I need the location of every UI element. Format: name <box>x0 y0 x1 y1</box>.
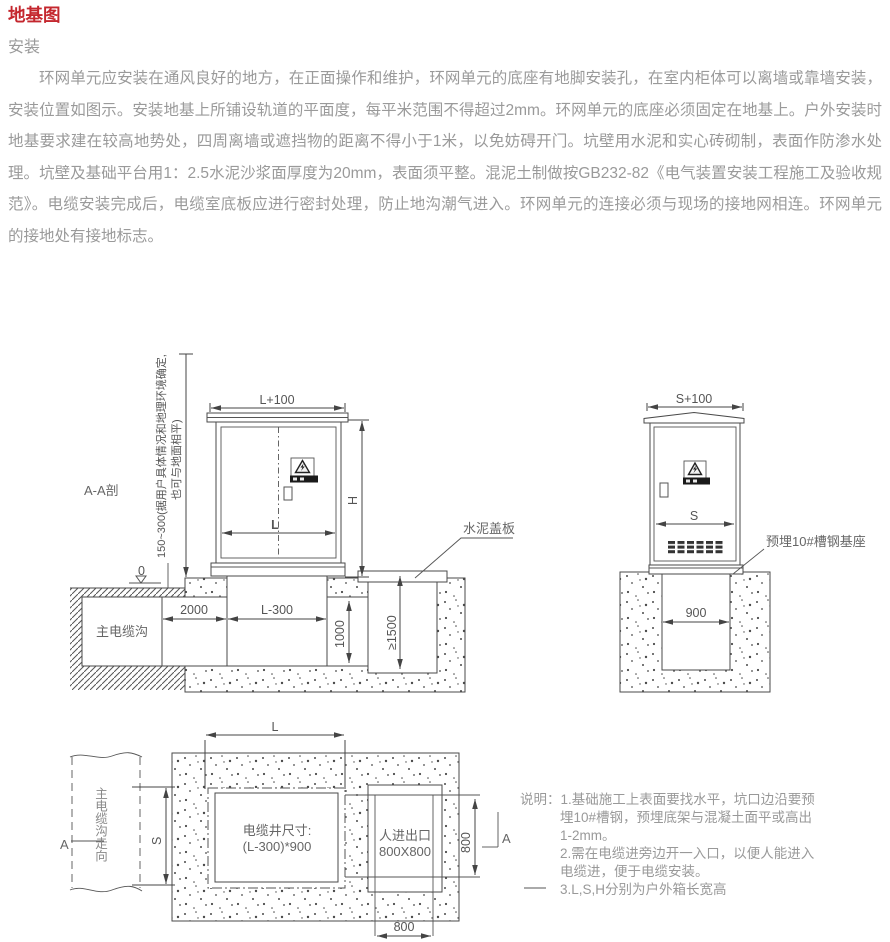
dim-plan-width-s: S <box>132 787 175 885</box>
ground-level-marker: 0 <box>129 563 168 588</box>
electric-warning-icon <box>683 461 710 485</box>
svg-text:900: 900 <box>686 606 707 620</box>
note-line: 3.L,S,H分别为户外箱长宽高 <box>520 881 890 899</box>
dim-front-top-width: L+100 <box>210 393 345 412</box>
trench-direction-label: 主电缆沟走向 <box>93 787 107 865</box>
main-cable-trench-label: 主电缆沟 <box>96 624 148 639</box>
svg-text:A: A <box>60 837 69 852</box>
dim-depth-150-300: 150~300(据用户具体情况和地理环境确定, 也可与地面相平) <box>154 354 193 577</box>
svg-text:L+100: L+100 <box>259 393 294 407</box>
svg-text:800: 800 <box>394 920 415 934</box>
svg-text:L: L <box>271 518 279 532</box>
page-title: 地基图 <box>8 2 61 27</box>
svg-text:H: H <box>346 496 360 505</box>
svg-text:150~300(据用户具体情况和地理环境确定,: 150~300(据用户具体情况和地理环境确定, <box>154 354 168 558</box>
cement-cover-slab <box>358 571 447 582</box>
svg-text:S: S <box>150 837 164 845</box>
cabinet-pit-cutout <box>227 576 327 666</box>
cable-well-label-1: 电缆井尺寸: <box>243 823 312 838</box>
svg-text:也可与地面相平): 也可与地面相平) <box>170 419 183 500</box>
section-heading: 安装 <box>8 33 40 57</box>
note-line: 埋10#槽钢，预埋底架与混凝土面平或高出 <box>520 809 890 827</box>
vent-grille <box>668 541 724 554</box>
svg-text:L: L <box>272 720 279 734</box>
svg-text:800: 800 <box>459 832 473 853</box>
cable-well-cutout <box>368 582 437 673</box>
dim-entrance-height-800: 800 <box>459 799 475 875</box>
side-elevation-diagram: S+100 S 900 预埋10#槽钢基座 <box>620 392 866 692</box>
door-handle-side <box>660 483 668 497</box>
cable-well-label-2: (L-300)*900 <box>243 839 312 854</box>
note-line: 1-2mm。 <box>520 827 890 845</box>
svg-text:2000: 2000 <box>180 603 208 617</box>
note-line: 2.需在电缆进旁边开一入口，以便人能进入 <box>520 845 890 863</box>
section-aa-label: A-A剖 <box>84 483 119 498</box>
svg-text:人进出口: 人进出口 <box>379 828 431 843</box>
plan-view-diagram: 电缆井尺寸: (L-300)*900 人进出口 800X800 L <box>60 720 546 936</box>
svg-text:水泥盖板: 水泥盖板 <box>463 521 515 536</box>
dim-entrance-width-800: 800 <box>377 920 431 936</box>
front-elevation-diagram: 主电缆沟 <box>70 354 515 692</box>
note-line: 电缆进，便于电缆安装。 <box>520 863 890 881</box>
dim-front-height: H <box>345 420 369 577</box>
notes-block: 说明：1.基础施工上表面要找水平，坑口边沿要预 埋10#槽钢，预埋底架与混凝土面… <box>520 791 890 899</box>
svg-text:800X800: 800X800 <box>379 844 431 859</box>
cabinet-side-view <box>644 413 744 575</box>
door-handle-front <box>284 487 292 500</box>
channel-steel-base-callout: 预埋10#槽钢基座 <box>733 534 866 574</box>
installation-paragraph: 环网单元应安装在通风良好的地方，在正面操作和维护，环网单元的底座有地脚安装孔，在… <box>8 63 882 252</box>
svg-text:S+100: S+100 <box>676 392 713 406</box>
svg-text:L-300: L-300 <box>261 603 293 617</box>
svg-text:1000: 1000 <box>333 620 347 648</box>
svg-text:A: A <box>502 831 511 846</box>
cement-cover-callout: 水泥盖板 <box>415 521 515 578</box>
svg-text:≥1500: ≥1500 <box>385 615 399 650</box>
electric-warning-icon <box>290 458 318 483</box>
svg-text:S: S <box>690 509 698 523</box>
note-line: 说明：1.基础施工上表面要找水平，坑口边沿要预 <box>520 791 890 809</box>
dim-side-top-width: S+100 <box>647 392 743 411</box>
cabinet-front-view <box>207 413 348 576</box>
svg-text:预埋10#槽钢基座: 预埋10#槽钢基座 <box>766 534 866 549</box>
